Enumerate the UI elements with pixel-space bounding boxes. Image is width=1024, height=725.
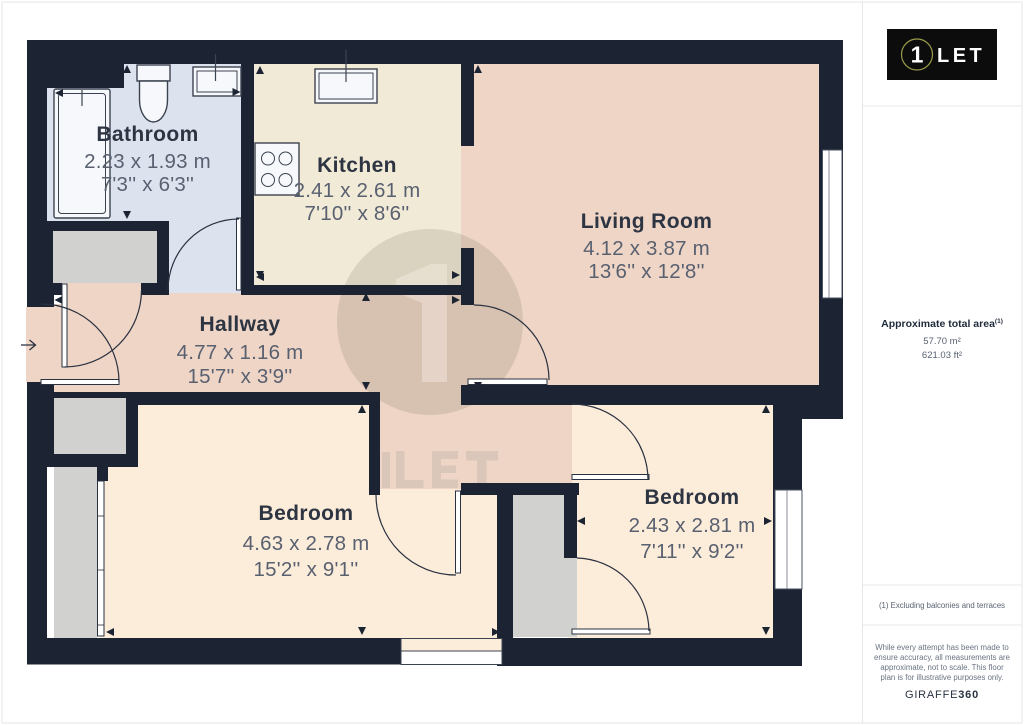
svg-text:Bathroom: Bathroom <box>96 123 198 146</box>
svg-text:While every attempt has been m: While every attempt has been made to <box>875 643 1009 652</box>
svg-text:LET: LET <box>937 45 985 67</box>
svg-text:plan is for illustrative purpo: plan is for illustrative purposes only. <box>881 673 1004 682</box>
svg-text:2.23 x 1.93 m: 2.23 x 1.93 m <box>84 150 211 173</box>
svg-text:15'7'' x 3'9'': 15'7'' x 3'9'' <box>188 365 293 388</box>
svg-text:15'2'' x 9'1'': 15'2'' x 9'1'' <box>254 558 359 581</box>
svg-text:2.43 x 2.81 m: 2.43 x 2.81 m <box>629 514 756 537</box>
svg-text:4.77 x 1.16 m: 4.77 x 1.16 m <box>177 341 304 364</box>
svg-text:(1) Excluding balconies and te: (1) Excluding balconies and terraces <box>879 601 1005 610</box>
svg-text:Living Room: Living Room <box>581 210 713 233</box>
svg-text:Hallway: Hallway <box>199 313 280 336</box>
svg-text:2.41 x 2.61 m: 2.41 x 2.61 m <box>294 179 421 202</box>
svg-text:Bedroom: Bedroom <box>645 486 740 509</box>
svg-text:1: 1 <box>911 42 924 68</box>
svg-text:Approximate total area(1): Approximate total area(1) <box>881 318 1003 330</box>
svg-text:621.03 ft²: 621.03 ft² <box>922 350 962 361</box>
svg-text:57.70 m²: 57.70 m² <box>923 336 961 347</box>
svg-text:4.63 x 2.78 m: 4.63 x 2.78 m <box>243 532 370 555</box>
svg-text:7'3'' x 6'3'': 7'3'' x 6'3'' <box>101 173 194 196</box>
svg-text:approximate, not to scale. Thi: approximate, not to scale. This floor <box>880 663 1004 672</box>
svg-text:Bedroom: Bedroom <box>259 502 354 525</box>
svg-text:ensure accuracy, all measureme: ensure accuracy, all measurements are <box>874 653 1010 662</box>
svg-text:4.12 x 3.87 m: 4.12 x 3.87 m <box>583 237 710 260</box>
svg-text:7'10'' x 8'6'': 7'10'' x 8'6'' <box>305 202 410 225</box>
svg-text:7'11'' x 9'2'': 7'11'' x 9'2'' <box>640 540 743 563</box>
svg-text:GIRAFFE360: GIRAFFE360 <box>905 689 979 701</box>
svg-text:13'6'' x 12'8'': 13'6'' x 12'8'' <box>588 260 705 283</box>
svg-text:Kitchen: Kitchen <box>317 154 397 177</box>
